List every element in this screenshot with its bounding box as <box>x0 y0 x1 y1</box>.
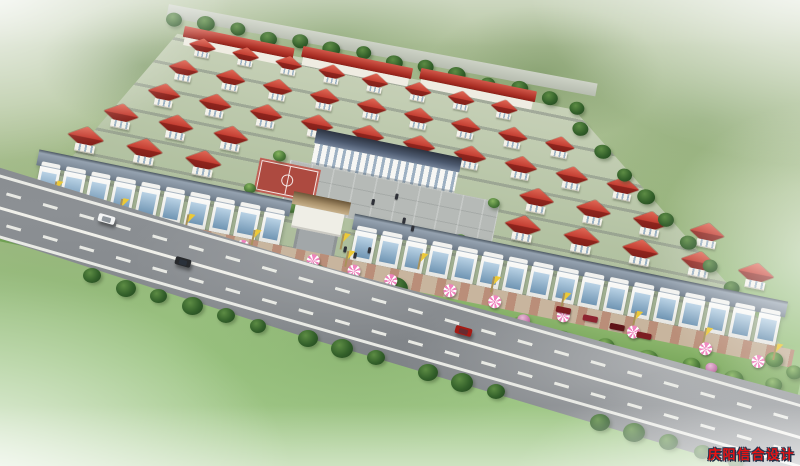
tree <box>785 364 800 381</box>
pedestrian <box>371 199 375 205</box>
pedestrian <box>411 225 415 231</box>
parasol <box>698 341 713 356</box>
parked-car <box>609 323 625 332</box>
parked-car <box>636 331 652 340</box>
pedestrian <box>402 217 406 223</box>
car <box>97 213 116 225</box>
parked-car <box>582 314 598 323</box>
pedestrian <box>367 247 371 253</box>
parasol <box>487 294 502 309</box>
parasol <box>442 283 457 298</box>
aerial-rendering: 庆阳信合设计 <box>0 0 800 466</box>
pedestrian <box>395 193 399 199</box>
pennant-flag <box>417 253 422 269</box>
pennant-flag <box>490 276 495 292</box>
pedestrian <box>353 252 357 258</box>
watermark: 庆阳信合设计 <box>708 444 795 463</box>
pennant-flag <box>251 230 256 246</box>
parasol <box>750 354 765 369</box>
car <box>174 256 192 268</box>
pennant-flag <box>344 251 349 267</box>
